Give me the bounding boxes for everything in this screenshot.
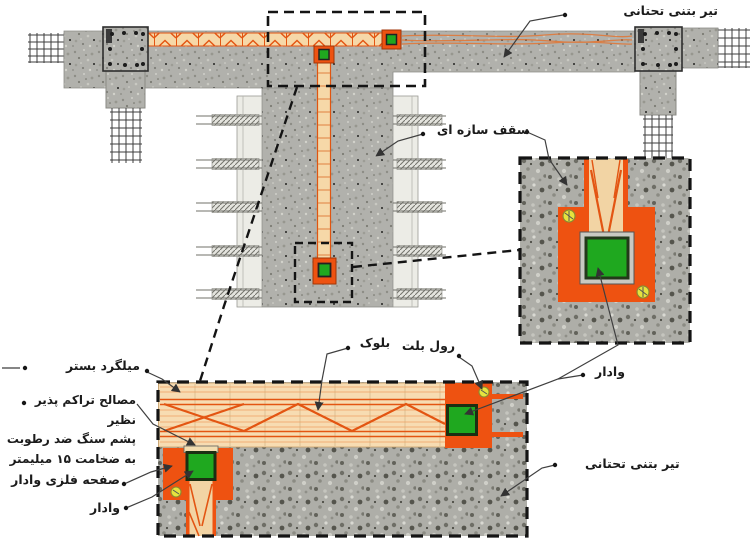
label-structural-ceiling: سقف سازه ای — [437, 122, 529, 137]
label-stud-left: وادار — [62, 500, 120, 515]
label-stud-plate: صفحه فلزی وادار — [6, 472, 120, 487]
anchor-bottom-of-strip — [313, 258, 336, 284]
vertical-stud-strip — [318, 60, 331, 262]
label-compressible-material: مصالح تراکم پذیر نظیر پشم سنگ ضد رطوبت ب… — [6, 391, 136, 469]
roll-bolt-screw — [563, 210, 575, 222]
roll-bolt-screw — [637, 286, 649, 298]
stud-end-green — [448, 406, 477, 435]
detail-box-right — [520, 158, 690, 343]
concrete-beam-right-segment — [682, 28, 718, 68]
detail-box-bottom — [158, 382, 527, 536]
label-roll-bolt: رول بلت — [401, 338, 456, 353]
label-bottom-beam: تیر بتنی تحتانی — [585, 456, 725, 471]
column-right — [635, 27, 682, 71]
stud-end-green — [187, 453, 215, 480]
column-stub-left — [106, 71, 145, 108]
roll-bolt-screw — [171, 487, 181, 497]
label-bed-rebar: میلگرد بستر — [32, 358, 140, 373]
label-top-beam: تیر بتنی تحتانی — [588, 3, 718, 18]
stud-end-green — [586, 238, 628, 278]
column-stub-right — [640, 71, 676, 115]
label-compressible-line3: به ضخامت ۱۵ میلیمتر — [6, 450, 136, 470]
column-cage-left — [110, 108, 142, 163]
block-beam — [159, 383, 447, 447]
anchor-top-mid — [314, 46, 334, 63]
horizontal-stud-strip — [148, 33, 400, 46]
label-compressible-line2: پشم سنگ ضد رطوبت — [6, 430, 136, 450]
rebar-mesh-right — [718, 28, 750, 68]
label-block: بلوک — [352, 335, 398, 350]
wood-stud-below — [186, 480, 216, 536]
label-compressible-line1: مصالح تراکم پذیر نظیر — [6, 391, 136, 430]
wood-stud-vertical — [584, 159, 628, 241]
roll-bolt-screw — [479, 387, 489, 397]
construction-detail-diagram: تیر بتنی تحتانی سقف سازه ای میلگرد بستر … — [0, 0, 750, 557]
rebar-mesh-left — [28, 33, 64, 63]
anchor-top-right — [382, 30, 401, 49]
column-left — [103, 27, 148, 71]
column-cage-right — [643, 115, 673, 163]
label-stud-right: وادار — [589, 364, 631, 379]
